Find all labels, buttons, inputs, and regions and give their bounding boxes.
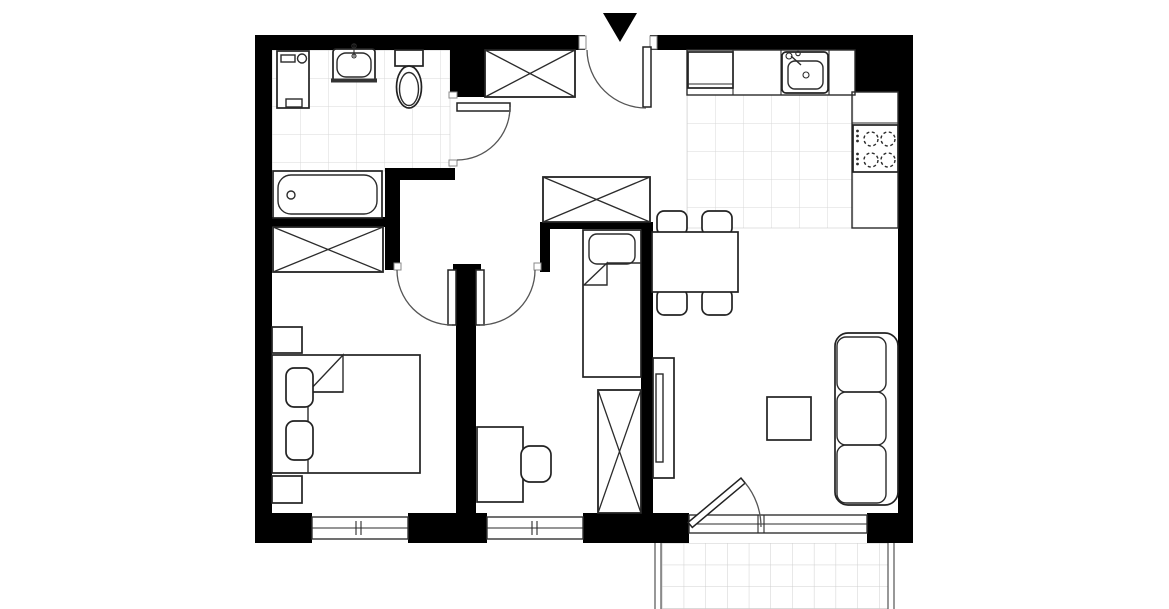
living-room-furniture	[653, 333, 898, 505]
stove	[853, 125, 898, 172]
wall-bathroom-door-pillar	[450, 50, 486, 97]
bathroom-door-leaf	[457, 103, 510, 111]
single-bed	[583, 230, 641, 377]
wall-top-left	[255, 35, 585, 50]
entrance-door	[579, 36, 657, 108]
coffee-table	[767, 397, 811, 440]
entrance-triangle-icon	[603, 13, 637, 42]
desk	[477, 427, 523, 502]
bedroom-door-leaf	[448, 270, 456, 325]
wall-bottom-3	[583, 513, 689, 543]
wall-bathtub-side	[385, 168, 400, 270]
balcony-tiled-floor	[662, 543, 888, 609]
wall-bedroom-divider	[456, 265, 476, 543]
wall-left	[255, 35, 272, 543]
entrance-marker	[603, 13, 637, 42]
kids-room-door-swing-arc	[480, 270, 535, 325]
sofa	[835, 333, 898, 505]
kids-room-door	[476, 263, 541, 325]
washbasin	[331, 44, 377, 81]
toilet	[395, 50, 423, 108]
wall-bottom-1	[255, 513, 312, 543]
dining-chair	[702, 289, 732, 315]
dining-table	[652, 232, 738, 292]
bathroom-door	[449, 92, 510, 166]
kids-room-door-leaf	[476, 270, 484, 325]
bathroom-door-swing-arc	[457, 107, 510, 160]
pillow	[286, 368, 313, 407]
balcony-door-window-strip	[689, 513, 867, 543]
wall-kidsroom-top	[543, 222, 650, 229]
entrance-door-swing-arc	[587, 50, 646, 108]
tv-cabinet	[653, 358, 674, 478]
bedroom-door	[394, 263, 456, 325]
kids-room-furniture	[477, 230, 641, 513]
entrance-door-leaf	[643, 47, 651, 107]
wall-bottom-2	[408, 513, 488, 543]
kids-room-window	[487, 513, 583, 543]
bedroom-door-swing-arc	[397, 270, 452, 325]
bedroom-window	[312, 513, 408, 543]
washing-machine	[277, 51, 309, 108]
hall-wardrobe-top	[485, 50, 575, 97]
desk-chair	[521, 446, 551, 482]
wall-bottom-4	[867, 513, 913, 543]
kitchen-tiled-floor	[687, 95, 853, 228]
nightstand	[272, 476, 302, 503]
wall-right	[898, 35, 913, 543]
pillow	[286, 421, 313, 460]
fridge	[688, 52, 733, 88]
dining-chair	[657, 289, 687, 315]
floor-plan	[0, 0, 1169, 609]
hall-wardrobe-lower	[543, 177, 650, 222]
kids-room-wardrobe	[598, 390, 641, 513]
hallway-fixtures	[485, 50, 650, 222]
bathtub	[273, 171, 382, 218]
kitchen-sink	[782, 51, 828, 93]
bedroom-wardrobe	[273, 227, 383, 272]
nightstand	[272, 327, 302, 353]
